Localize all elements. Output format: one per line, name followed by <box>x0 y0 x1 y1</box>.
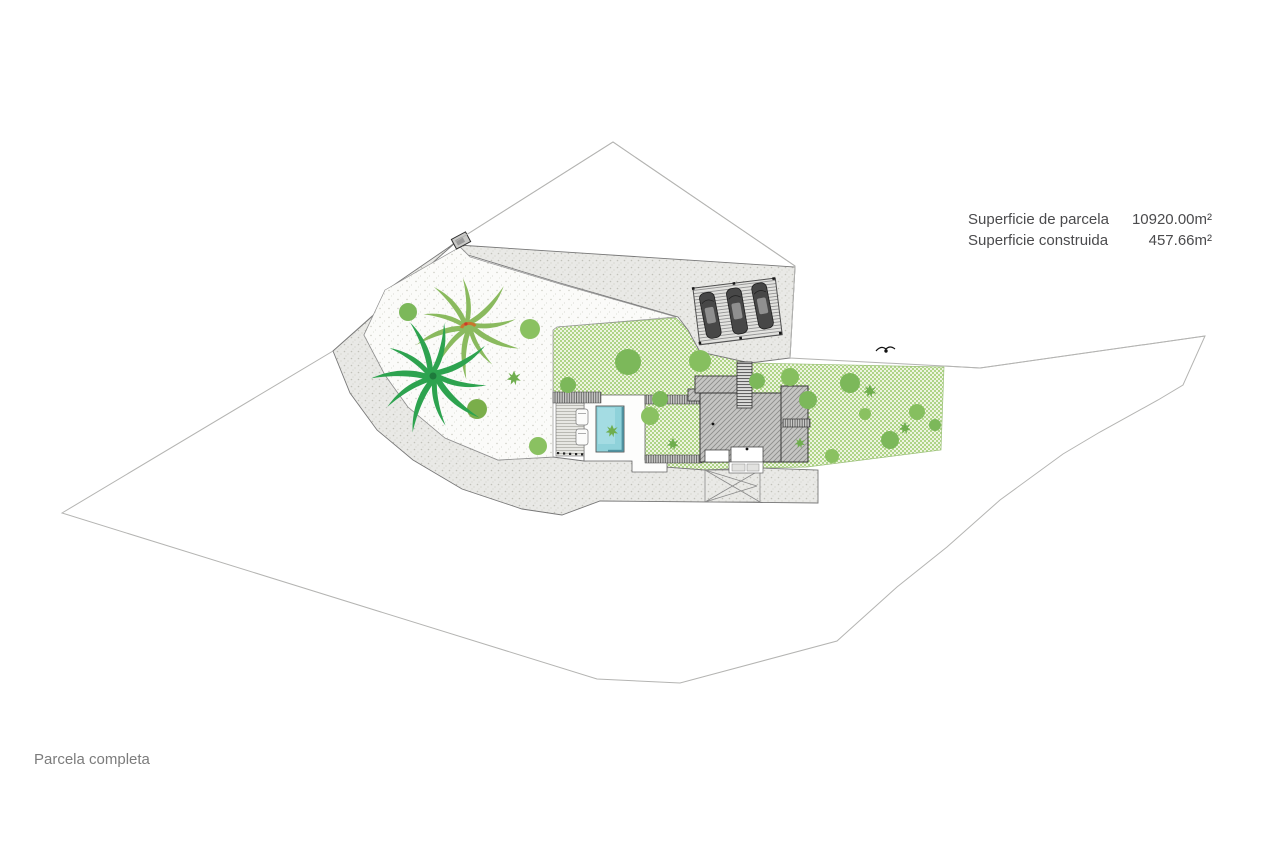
house-upper-block <box>695 376 737 393</box>
parking-area <box>692 277 782 345</box>
site-plan-page: Superficie de parcela 10920.00m² Superfi… <box>0 0 1280 854</box>
built-area-label: Superficie construida <box>968 230 1108 251</box>
site-plan-drawing <box>0 0 1280 854</box>
tree <box>840 373 860 393</box>
bird-marker <box>876 347 895 353</box>
tree <box>560 377 576 393</box>
roof-dot <box>746 448 749 451</box>
sun-lounger <box>576 409 588 425</box>
tree <box>859 408 871 420</box>
built-area-row: Superficie construida 457.66m² <box>968 230 1212 251</box>
parcel-area-label: Superficie de parcela <box>968 209 1109 230</box>
tree <box>689 350 711 372</box>
built-area-value: 457.66m² <box>1149 230 1212 251</box>
sun-lounger <box>576 429 588 445</box>
tree <box>652 391 668 407</box>
tree <box>929 419 941 431</box>
tree <box>615 349 641 375</box>
exterior-stairs <box>737 362 752 408</box>
tree <box>825 449 839 463</box>
roof-dot <box>712 423 715 426</box>
tree <box>641 407 659 425</box>
plan-caption: Parcela completa <box>34 751 150 768</box>
parcel-area-value: 10920.00m² <box>1132 209 1212 230</box>
tree <box>781 368 799 386</box>
area-info-panel: Superficie de parcela 10920.00m² Superfi… <box>968 209 1212 251</box>
pergola-strip <box>553 392 601 403</box>
house-notch-left <box>705 450 729 462</box>
entrance-steps <box>729 462 763 473</box>
tree <box>749 373 765 389</box>
parcel-area-row: Superficie de parcela 10920.00m² <box>968 209 1212 230</box>
tree <box>799 391 817 409</box>
tree <box>529 437 547 455</box>
walkway-strip-lower <box>645 455 702 463</box>
tree <box>909 404 925 420</box>
house-connector-bridge <box>783 419 810 427</box>
tree <box>520 319 540 339</box>
tree <box>881 431 899 449</box>
tree <box>399 303 417 321</box>
